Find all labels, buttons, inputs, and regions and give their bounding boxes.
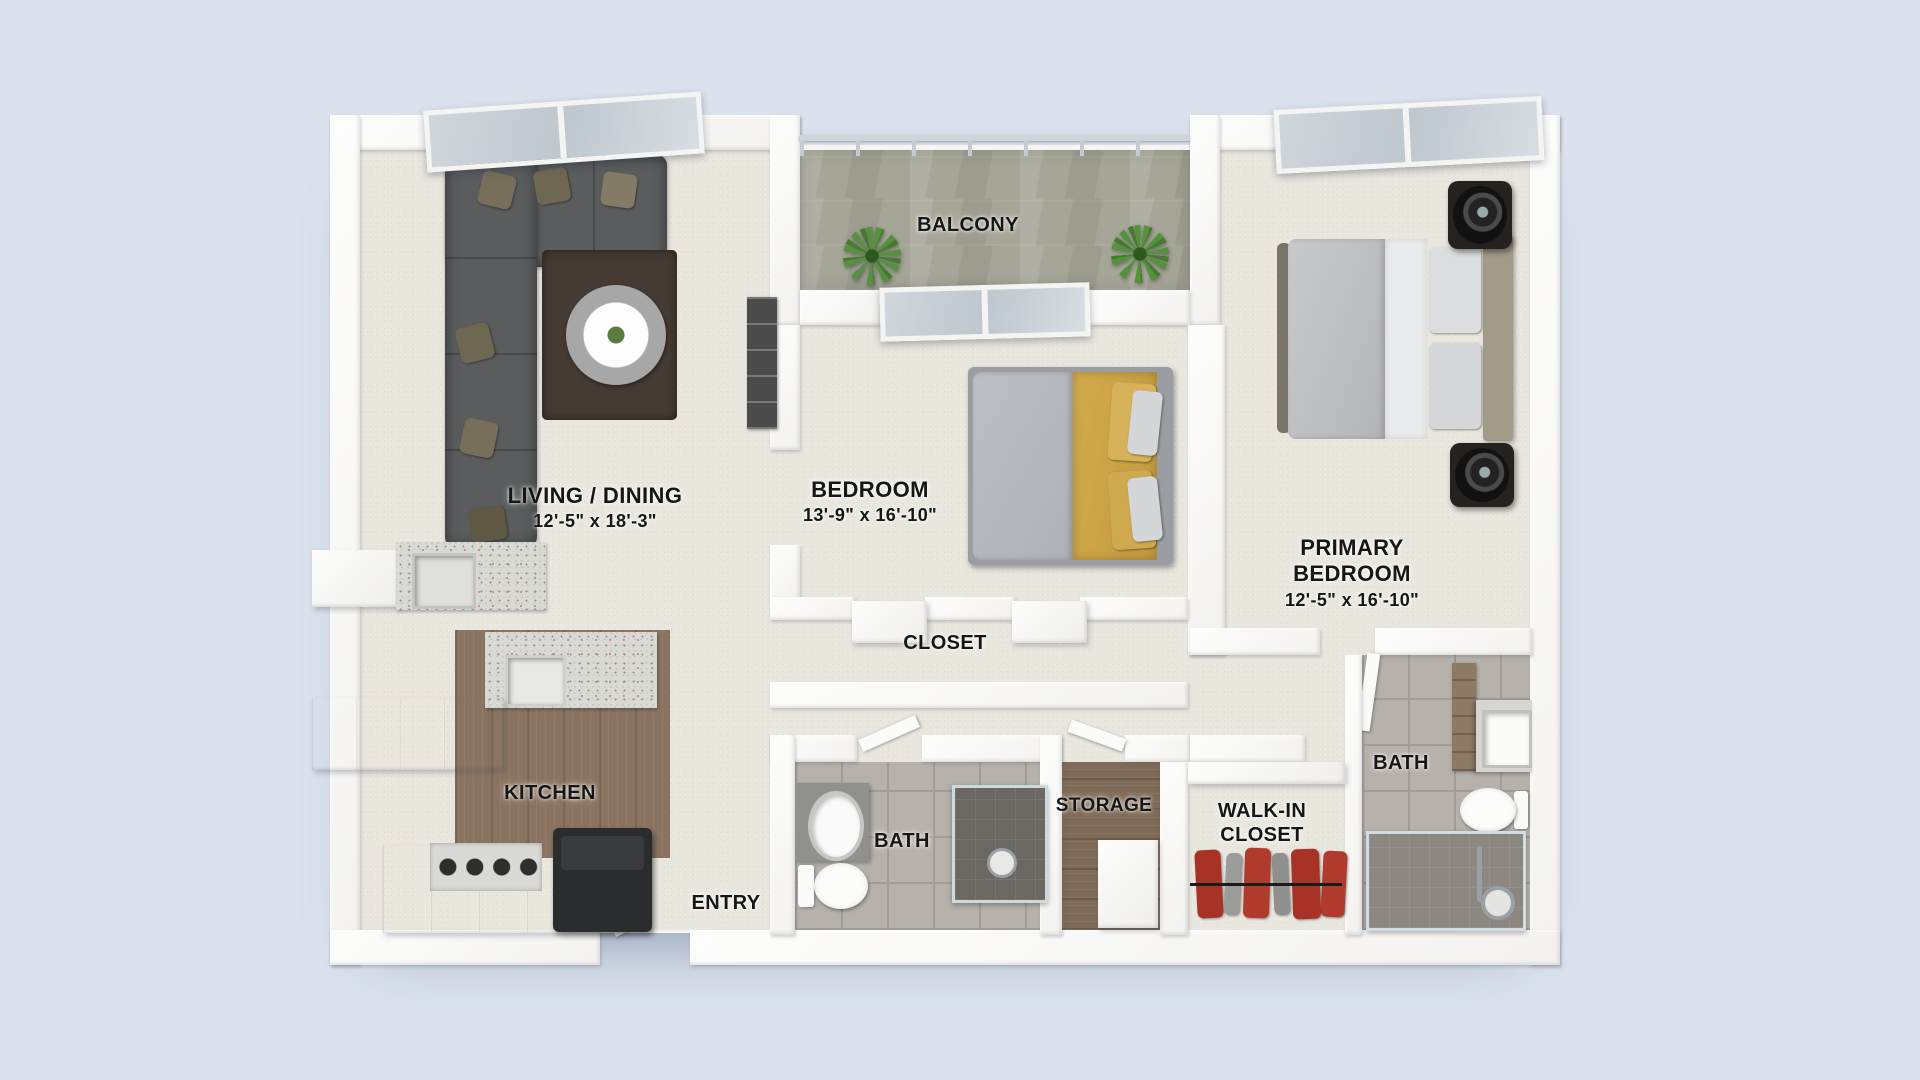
room-name: ENTRY bbox=[691, 891, 760, 915]
island-counter bbox=[312, 698, 504, 770]
wall-left bbox=[330, 115, 360, 965]
primary-sheet-fold bbox=[1385, 239, 1427, 439]
peninsula-sink bbox=[412, 553, 476, 609]
room-name: KITCHEN bbox=[504, 781, 596, 805]
balcony-left-wall bbox=[770, 115, 800, 325]
room-label-closet: CLOSET bbox=[903, 631, 987, 655]
media-cabinet bbox=[747, 297, 777, 429]
room-label-entry: ENTRY bbox=[691, 891, 760, 915]
room-label-bath-main: BATH bbox=[874, 829, 930, 853]
room-label-balcony: BALCONY bbox=[917, 213, 1019, 237]
floor-plan-scene: LIVING / DINING 12'-5" x 18'-3" BALCONY … bbox=[0, 0, 1920, 1080]
room-name: PRIMARY BEDROOM bbox=[1248, 535, 1456, 588]
room-label-walk-in-closet: WALK-IN CLOSET bbox=[1197, 799, 1327, 847]
room-label-bedroom: BEDROOM 13'-9" x 16'-10" bbox=[803, 477, 937, 527]
balcony-railing-posts bbox=[800, 141, 1190, 156]
wall-right bbox=[1530, 115, 1560, 965]
storage-walkin-divider bbox=[1160, 762, 1188, 935]
tub-handrail bbox=[1477, 846, 1482, 902]
room-name: STORAGE bbox=[1056, 795, 1152, 818]
floor-plan: LIVING / DINING 12'-5" x 18'-3" BALCONY … bbox=[330, 115, 1560, 965]
room-name: BEDROOM bbox=[803, 477, 937, 503]
room-name: BATH bbox=[1373, 751, 1429, 775]
room-name: CLOSET bbox=[903, 631, 987, 655]
primary-duvet bbox=[1288, 239, 1385, 439]
bath-primary-toilet-bowl bbox=[1460, 788, 1516, 832]
closet-top-wall-c bbox=[1080, 597, 1188, 620]
room-label-living-dining: LIVING / DINING 12'-5" x 18'-3" bbox=[508, 483, 683, 533]
balcony-bottom-wall-right bbox=[1088, 290, 1190, 325]
counter-peninsula-base bbox=[312, 550, 400, 607]
bath-main-shower bbox=[952, 785, 1048, 903]
wall-bottom-left bbox=[330, 930, 600, 965]
room-name: BATH bbox=[874, 829, 930, 853]
balcony-right-wall bbox=[1190, 115, 1220, 325]
walkin-bath-divider bbox=[1345, 655, 1362, 935]
stove-cooktop bbox=[430, 843, 542, 891]
primary-bottom-wall-left bbox=[1190, 628, 1320, 655]
closet-bottom-wall bbox=[770, 682, 1188, 708]
bedroom-primary-wall bbox=[1188, 325, 1225, 655]
closet-door-panel-right bbox=[1012, 601, 1087, 643]
bath-primary-cabinet bbox=[1452, 663, 1476, 771]
room-dimensions: 13'-9" x 16'-10" bbox=[803, 505, 937, 527]
room-name: WALK-IN CLOSET bbox=[1197, 799, 1327, 847]
bath-primary-tub bbox=[1366, 831, 1526, 931]
bath-main-toilet-tank bbox=[798, 865, 814, 907]
speaker-bottom bbox=[1450, 443, 1514, 507]
closet-top-wall-b bbox=[925, 597, 1015, 620]
closet-top-wall-a bbox=[770, 597, 855, 620]
dining-table bbox=[566, 285, 666, 385]
wall-bottom-right bbox=[690, 930, 1560, 965]
room-label-kitchen: KITCHEN bbox=[504, 781, 596, 805]
primary-headboard bbox=[1483, 235, 1513, 441]
balcony-plant-left bbox=[843, 227, 901, 285]
living-bedroom-wall-lower bbox=[770, 545, 800, 600]
tub-shower-head bbox=[1481, 886, 1515, 920]
room-label-bath-primary: BATH bbox=[1373, 751, 1429, 775]
sofa-pillow bbox=[532, 166, 571, 205]
closet-rod bbox=[1190, 883, 1342, 886]
bath-primary-sink bbox=[1482, 710, 1532, 768]
room-label-primary-bedroom: PRIMARY BEDROOM 12'-5" x 16'-10" bbox=[1248, 535, 1456, 611]
storage-shelf bbox=[1098, 840, 1158, 928]
speaker-top bbox=[1448, 181, 1512, 249]
bath-main-left-wall bbox=[770, 735, 795, 935]
bath-primary-top-wall bbox=[1375, 628, 1532, 655]
room-name: LIVING / DINING bbox=[508, 483, 683, 509]
window-mullion bbox=[981, 290, 988, 334]
primary-pillow bbox=[1429, 343, 1481, 429]
primary-pillow bbox=[1429, 247, 1481, 333]
walkin-top-wall bbox=[1190, 735, 1305, 762]
room-dimensions: 12'-5" x 18'-3" bbox=[508, 511, 683, 533]
balcony-bottom-wall-left bbox=[800, 290, 882, 325]
hall-bath-wall-c bbox=[1125, 735, 1190, 762]
bedroom-balcony-window bbox=[879, 282, 1090, 341]
window-mullion bbox=[557, 106, 567, 158]
refrigerator-top-panel bbox=[561, 836, 644, 870]
room-dimensions: 12'-5" x 16'-10" bbox=[1248, 590, 1456, 612]
shower-head bbox=[987, 848, 1017, 878]
bath-main-toilet-bowl bbox=[814, 863, 868, 909]
sofa-pillow bbox=[600, 171, 638, 209]
room-name: BALCONY bbox=[917, 213, 1019, 237]
bath-primary-toilet-tank bbox=[1514, 791, 1528, 829]
walkin-shelf bbox=[1188, 762, 1345, 784]
room-label-storage: STORAGE bbox=[1056, 795, 1152, 818]
bath-main-sink bbox=[808, 791, 864, 861]
window-mullion bbox=[1403, 108, 1412, 162]
refrigerator bbox=[553, 828, 652, 932]
bedroom-duvet bbox=[973, 372, 1073, 560]
balcony-plant-right bbox=[1111, 225, 1169, 283]
sofa-pillow bbox=[468, 505, 508, 544]
kitchen-sink bbox=[505, 655, 566, 707]
